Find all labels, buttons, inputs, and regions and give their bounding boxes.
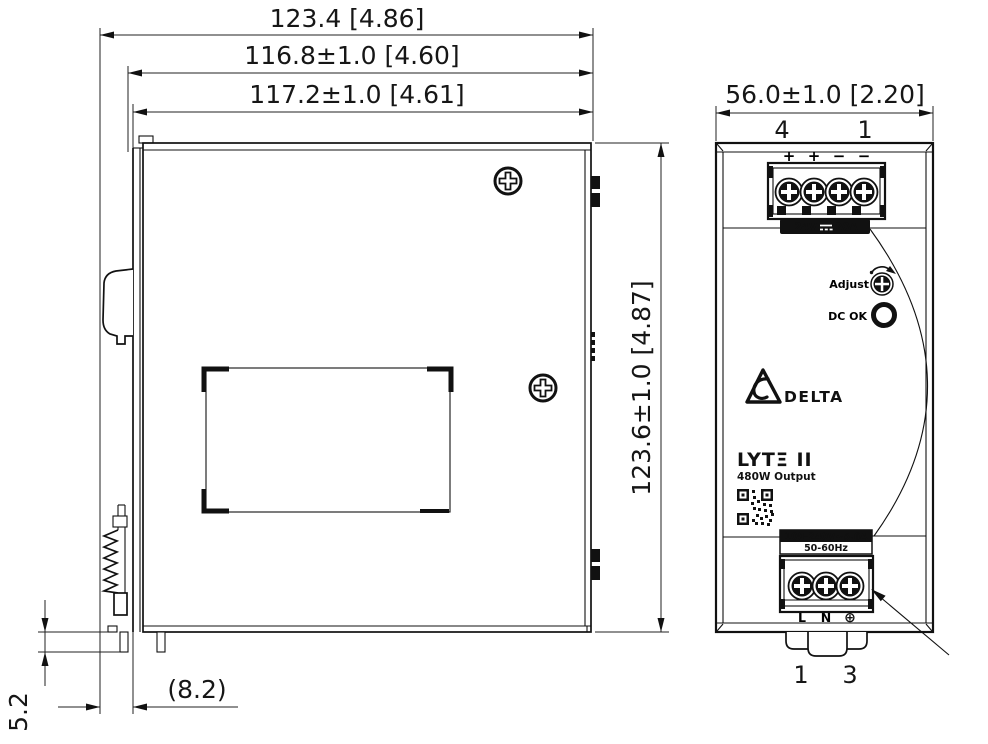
terminal-label-n: N (821, 610, 831, 625)
din-foot (786, 632, 867, 656)
terminal-screw-icon (837, 573, 864, 600)
din-rail-clip (103, 269, 165, 652)
pin-number-1-bottom: 1 (793, 661, 808, 689)
dim-case-width: 117.2±1.0 [4.61] (249, 80, 464, 109)
terminal-screw-icon (776, 179, 803, 206)
dim-body-width: 116.8±1.0 [4.60] (244, 41, 459, 70)
earth-symbol: ⊕ (844, 610, 856, 626)
output-terminal-block (768, 163, 885, 219)
dim-overall-width: 123.4 [4.86] (270, 4, 425, 33)
terminal-screw-icon (826, 179, 853, 206)
clip-release-pin (120, 632, 128, 652)
terminal-screw-icon (813, 573, 840, 600)
dim-clip-protrusion: 5.2 (4, 692, 33, 732)
terminal-screw-icon (789, 573, 816, 600)
polarity-minus: − (833, 147, 846, 165)
polarity-plus: + (808, 147, 821, 165)
pin-number-4: 4 (774, 116, 789, 144)
terminal-screw-icon (851, 179, 878, 206)
pin-number-3-bottom: 3 (842, 661, 857, 689)
brand-wordmark: DELTA (784, 388, 844, 406)
side-label-cutout (204, 368, 451, 512)
output-rating-label: 24V 20A (780, 219, 870, 234)
input-frequency: 50-60Hz (804, 543, 848, 554)
dim-height: 123.6±1.0 [4.87] (627, 280, 656, 495)
dc-ok-led-icon (874, 305, 895, 326)
phillips-screw-icon (530, 375, 556, 401)
side-edge-tabs (591, 176, 600, 580)
adjust-label: Adjust (829, 278, 869, 291)
terminal-label-l: L (798, 610, 806, 625)
side-view: 123.4 [4.86] 116.8±1.0 [4.60] 117.2±1.0 … (4, 4, 669, 732)
phillips-screw-icon (495, 168, 521, 194)
polarity-plus: + (783, 147, 796, 165)
clip-spring-serrations (104, 530, 118, 593)
dc-ok-label: DC OK (828, 310, 867, 323)
pin-number-1: 1 (857, 116, 872, 144)
polarity-minus: − (858, 147, 871, 165)
dim-clip-gap: (8.2) (167, 675, 226, 704)
terminal-screw-icon (801, 179, 828, 206)
output-power: 480W Output (737, 471, 816, 483)
front-view: 56.0±1.0 [2.20] 4 1 (716, 80, 949, 689)
rating-current: 20A (835, 222, 859, 234)
input-terminal-block (780, 556, 873, 612)
rating-voltage: 24V (794, 222, 818, 234)
front-dimension-width: 56.0±1.0 [2.20] (716, 80, 933, 141)
side-dimensions-bottom: 5.2 (8.2) (4, 600, 238, 732)
side-dimension-height: 123.6±1.0 [4.87] (595, 143, 669, 632)
model-name: LYTΞ II (737, 449, 813, 471)
side-dimensions-top: 123.4 [4.86] 116.8±1.0 [4.60] 117.2±1.0 … (100, 4, 593, 714)
dim-front-width: 56.0±1.0 [2.20] (725, 80, 925, 109)
drawing-canvas: 123.4 [4.86] 116.8±1.0 [4.60] 117.2±1.0 … (0, 0, 988, 744)
technical-drawing: 123.4 [4.86] 116.8±1.0 [4.60] 117.2±1.0 … (0, 0, 988, 744)
case-foot-pin (157, 632, 165, 652)
input-rating-label: 100-240V~5.6A 50-60Hz (780, 530, 872, 554)
input-rating: 100-240V~5.6A (784, 532, 868, 543)
